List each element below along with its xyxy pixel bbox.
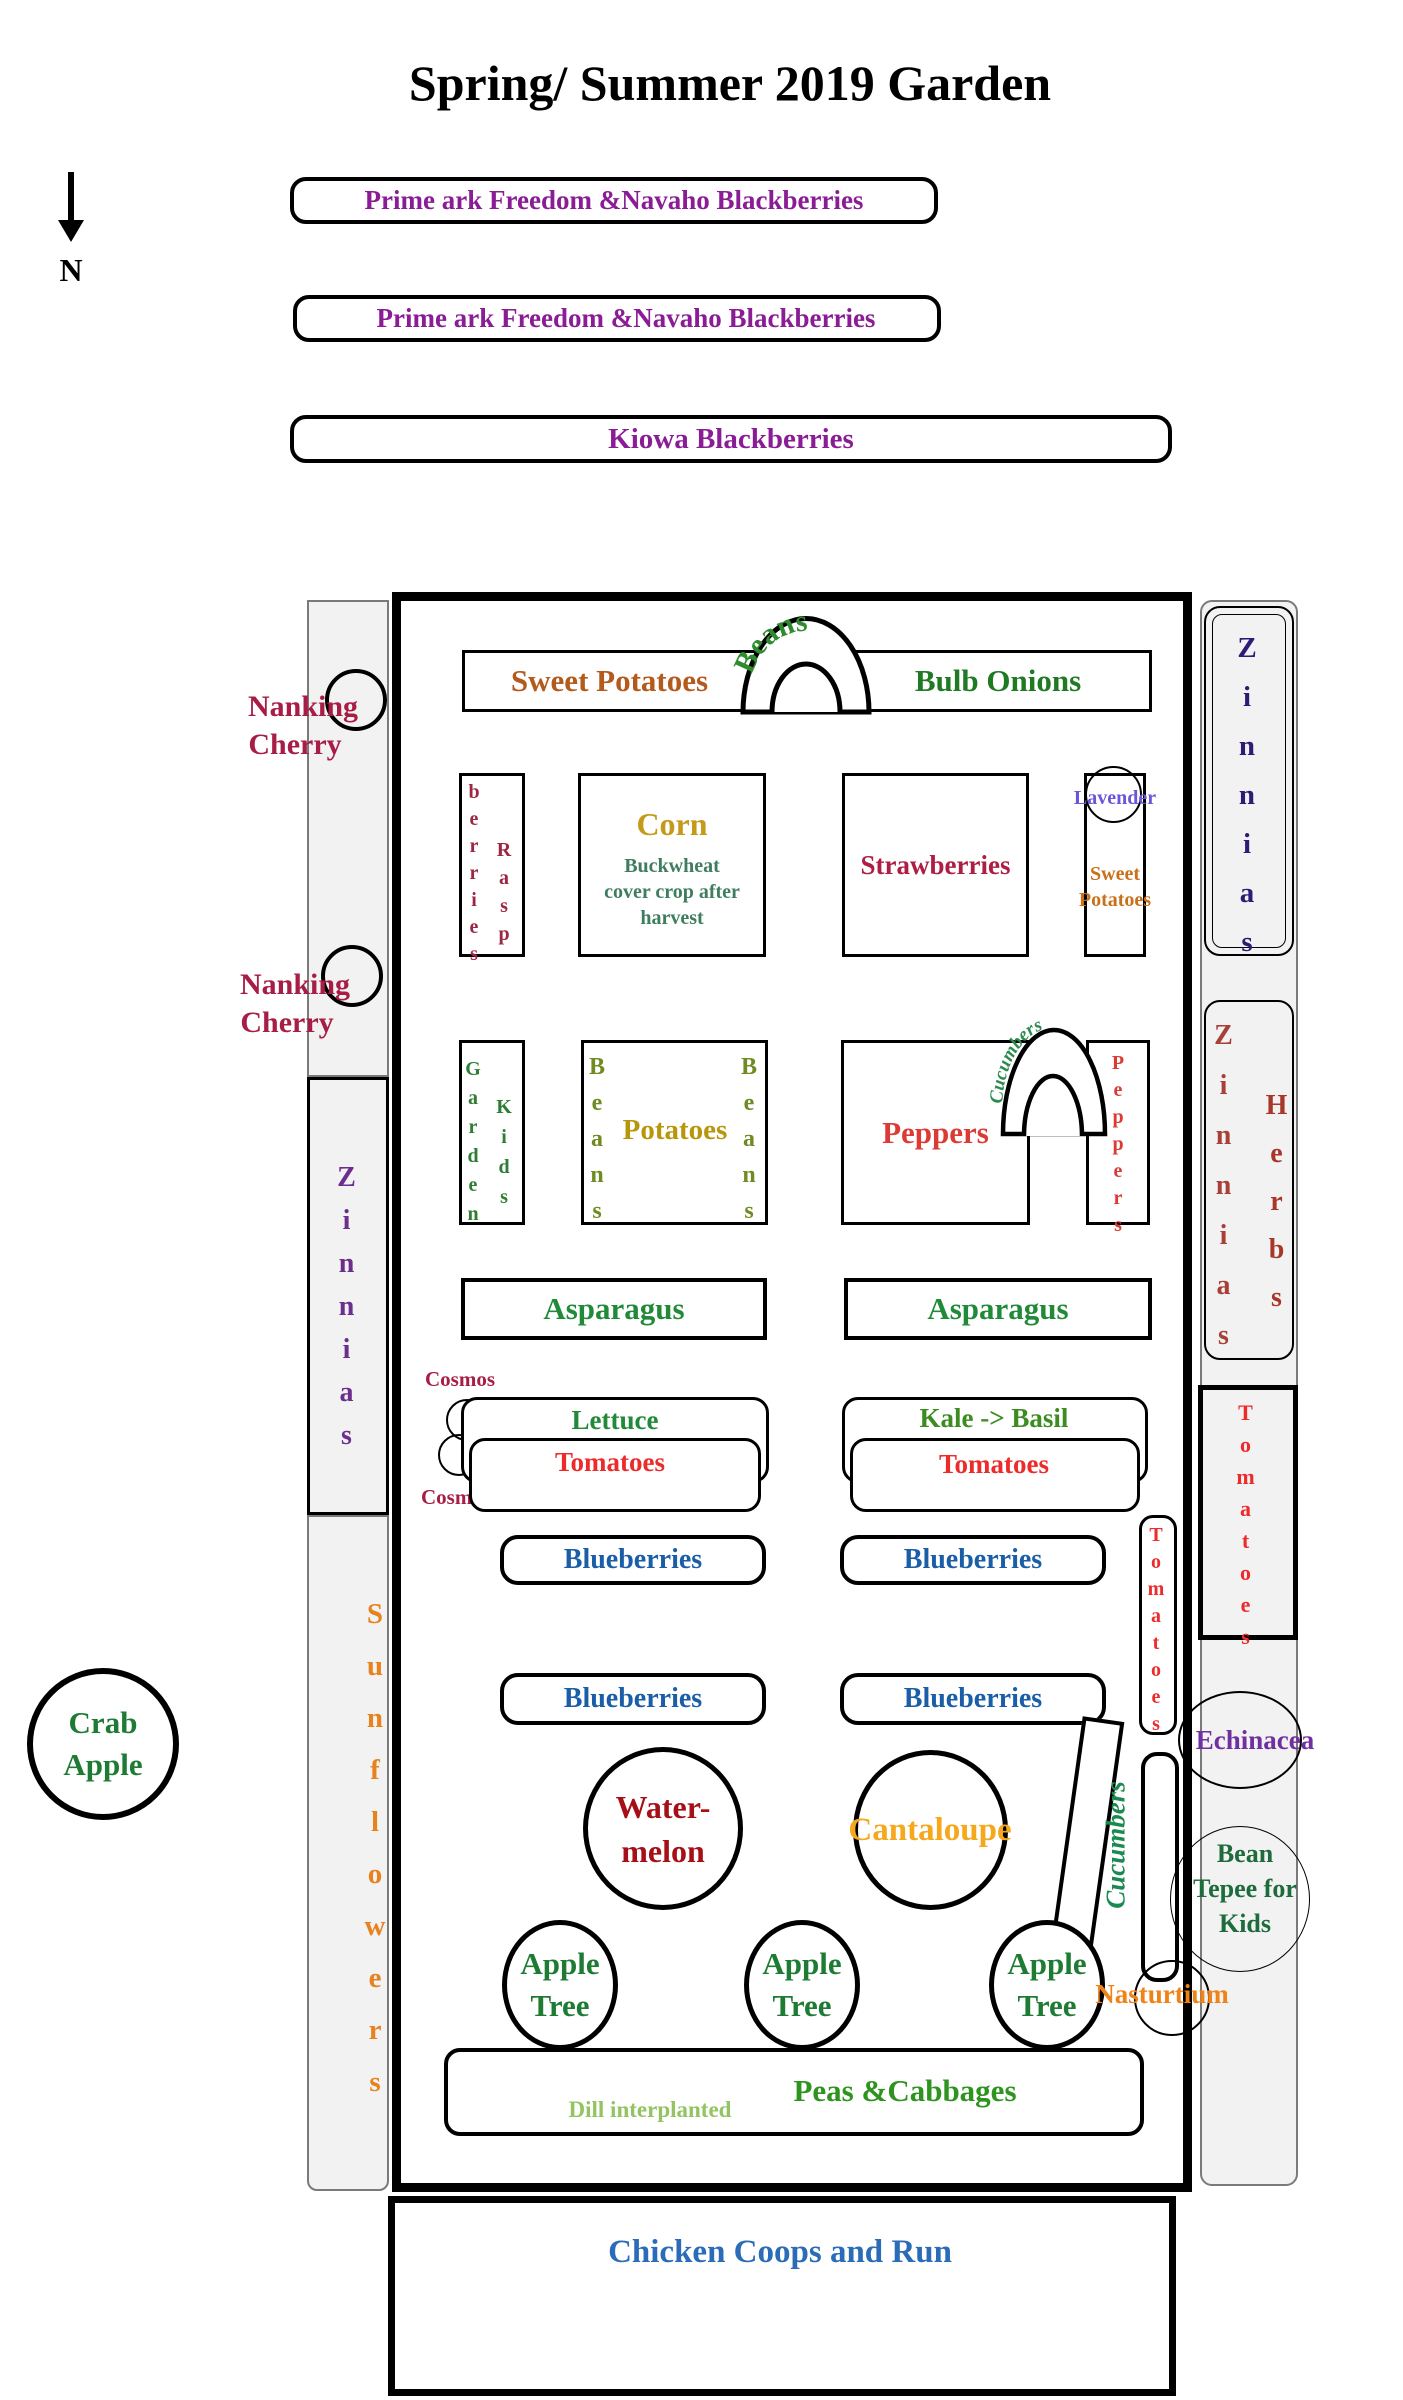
nanking-cherry-1-line2: Cherry [220, 726, 370, 764]
dill-note-label: Dill interplanted [540, 2096, 760, 2125]
bed-blackberries-1-label: Prime ark Freedom &Navaho Blackberries [365, 185, 864, 216]
bed-bulb-onions-label: Bulb Onions [915, 663, 1081, 699]
bed-blueberries-1-label: Blueberries [564, 1544, 702, 1576]
chicken-run-label: Chicken Coops and Run [490, 2232, 1070, 2273]
cucumbers-trellis-label: Cucumbers [1101, 1781, 1132, 1909]
bed-peas-cabbages-label: Peas &Cabbages [740, 2072, 1070, 2111]
bed-tomatoes-vertical-inner-label: Tomatoes [1146, 1524, 1166, 1740]
bed-blackberries-3-label: Kiowa Blackberries [608, 423, 854, 456]
echinacea-label: Echinacea [1155, 1724, 1355, 1758]
cosmos-1-label: Cosmos [408, 1366, 512, 1392]
bed-raspberries-col2-label: Rasp [494, 839, 514, 951]
crab-apple-circle: Crab Apple [27, 1668, 179, 1820]
bed-strawberries-label: Strawberries [861, 850, 1011, 881]
apple-tree-2-line2: Tree [772, 1985, 831, 2027]
nanking-cherry-2-line1: Nanking [220, 966, 370, 1004]
nanking-cherry-2-line2: Cherry [212, 1004, 362, 1042]
sweet-potatoes-small-line1: Sweet [1063, 862, 1167, 887]
lavender-label: Lavender [1058, 786, 1172, 811]
apple-tree-1-line1: Apple [520, 1943, 599, 1985]
apple-tree-2-line1: Apple [762, 1943, 841, 1985]
north-arrow-head-icon [58, 220, 84, 242]
bed-blueberries-2-label: Blueberries [904, 1544, 1042, 1576]
bed-sweet-potatoes: Sweet Potatoes [462, 650, 757, 712]
bed-asparagus-left-label: Asparagus [543, 1291, 684, 1327]
bed-garden-kids-col2-label: Kids [494, 1096, 514, 1216]
bed-kale-basil-label: Kale -> Basil [866, 1402, 1122, 1436]
cucumbers-arch-shape: Cucumbers [998, 1012, 1110, 1138]
bed-asparagus-left: Asparagus [461, 1278, 767, 1340]
bed-blueberries-3-label: Blueberries [564, 1683, 702, 1715]
bed-blackberries-2: Prime ark Freedom &Navaho Blackberries [293, 295, 941, 342]
right-zinnias-mid-label: Zinnias [1209, 1020, 1237, 1370]
north-label: N [48, 250, 94, 290]
bed-blueberries-4-label: Blueberries [904, 1683, 1042, 1715]
bean-tepee-line1: Bean [1165, 1838, 1325, 1871]
bed-asparagus-right-label: Asparagus [927, 1291, 1068, 1327]
nasturtium-label: Nasturtium [1062, 1978, 1262, 2012]
page-title: Spring/ Summer 2019 Garden [300, 52, 1160, 115]
sweet-potatoes-small-line2: Potatoes [1063, 888, 1167, 913]
bed-potatoes-label: Potatoes [591, 1112, 759, 1148]
bean-tepee-line3: Kids [1165, 1908, 1325, 1941]
beans-arch-shape: Beans [731, 598, 881, 714]
bed-garden-kids-col1-label: Garden [463, 1058, 483, 1232]
watermelon-circle: Water- melon [583, 1747, 743, 1910]
bed-peppers-label: Peppers [882, 1115, 989, 1151]
bed-blueberries-3: Blueberries [500, 1673, 766, 1725]
north-arrow-stem [68, 172, 74, 222]
left-zinnias-label: Zinnias [332, 1162, 360, 1463]
bed-sweet-potatoes-label: Sweet Potatoes [511, 663, 708, 699]
bed-corn-note-line2: cover crop after [604, 879, 740, 905]
bed-blackberries-2-label: Prime ark Freedom &Navaho Blackberries [377, 303, 876, 334]
sunflowers-label: Sunflowers [360, 1598, 389, 2118]
bed-corn-note-line3: harvest [640, 905, 703, 931]
bed-kale-tomatoes-label: Tomatoes [874, 1448, 1114, 1482]
bed-bulb-onions: Bulb Onions [844, 650, 1152, 712]
apple-tree-1-line2: Tree [530, 1985, 589, 2027]
bed-strawberries: Strawberries [842, 773, 1029, 957]
bean-tepee-line2: Tepee for [1160, 1873, 1330, 1906]
herbs-label: Herbs [1262, 1090, 1290, 1330]
bed-blueberries-4: Blueberries [840, 1673, 1106, 1725]
apple-tree-1-circle: Apple Tree [502, 1920, 618, 2050]
cantaloupe-label: Cantaloupe [810, 1810, 1050, 1851]
bed-corn-label: Corn [636, 806, 707, 843]
bed-lettuce-tomatoes-label: Tomatoes [495, 1446, 725, 1480]
bed-corn: Corn Buckwheat cover crop after harvest [578, 773, 766, 957]
bed-blackberries-3: Kiowa Blackberries [290, 415, 1172, 463]
crab-apple-line2: Apple [63, 1744, 142, 1786]
bed-blueberries-1: Blueberries [500, 1535, 766, 1585]
bed-blueberries-2: Blueberries [840, 1535, 1106, 1585]
bed-blackberries-1: Prime ark Freedom &Navaho Blackberries [290, 177, 938, 224]
bed-corn-note-line1: Buckwheat [624, 853, 720, 879]
chicken-run-area [388, 2196, 1176, 2396]
nanking-cherry-1-line1: Nanking [228, 688, 378, 726]
bed-peppers-vertical-label: Peppers [1108, 1052, 1128, 1241]
garden-plan-canvas: Spring/ Summer 2019 Garden N Prime ark F… [0, 0, 1403, 2400]
right-zinnias-top-label: Zinnias [1232, 632, 1261, 975]
bed-asparagus-right: Asparagus [844, 1278, 1152, 1340]
right-tomatoes-label: Tomatoes [1234, 1400, 1256, 1656]
apple-tree-2-circle: Apple Tree [744, 1920, 860, 2050]
bed-lettuce-label: Lettuce [500, 1404, 730, 1438]
crab-apple-line1: Crab [69, 1702, 138, 1744]
bed-raspberries-col1-label: berries [464, 781, 484, 970]
watermelon-line2: melon [621, 1829, 705, 1873]
watermelon-line1: Water- [616, 1785, 711, 1829]
